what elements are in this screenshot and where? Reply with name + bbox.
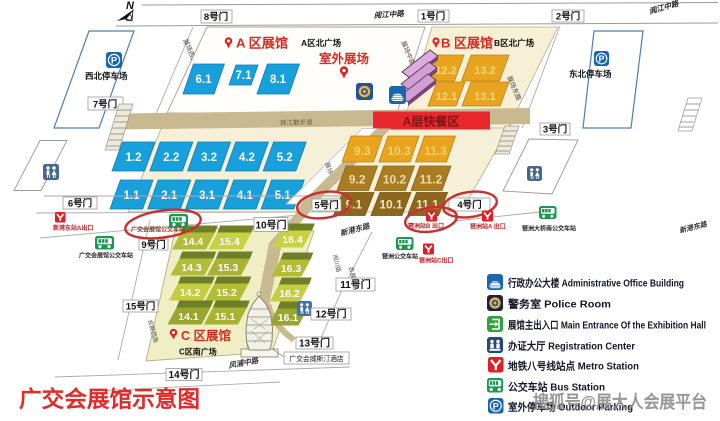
svg-text:5.2: 5.2 (277, 152, 293, 164)
svg-text:16.2: 16.2 (279, 288, 300, 300)
svg-text:15号门: 15号门 (126, 301, 156, 313)
svg-text:3.2: 3.2 (201, 152, 217, 164)
svg-text:10.1: 10.1 (379, 198, 403, 212)
svg-text:16.3: 16.3 (281, 263, 302, 275)
svg-text:8号门: 8号门 (204, 11, 228, 23)
svg-text:琶洲站A 出口: 琶洲站A 出口 (470, 223, 506, 231)
svg-text:2号门: 2号门 (556, 11, 580, 23)
svg-text:行政办公大楼 Administrative Office B: 行政办公大楼 Administrative Office Building (507, 277, 684, 290)
svg-text:东北停车场: 东北停车场 (569, 69, 612, 79)
svg-text:14.1: 14.1 (178, 311, 199, 323)
svg-text:10.3: 10.3 (387, 144, 411, 158)
svg-text:9.2: 9.2 (349, 173, 366, 187)
svg-text:1.2: 1.2 (126, 152, 142, 164)
svg-text:13号门: 13号门 (299, 337, 330, 350)
svg-text:琶洲公交车站: 琶洲公交车站 (382, 253, 418, 261)
svg-text:琶洲站C出口: 琶洲站C出口 (419, 257, 453, 265)
svg-text:3号门: 3号门 (543, 124, 567, 136)
svg-text:14号门: 14号门 (168, 368, 199, 381)
svg-text:警务室 Police Room: 警务室 Police Room (507, 298, 611, 311)
svg-text:室外展场: 室外展场 (319, 51, 369, 66)
svg-text:13.2: 13.2 (474, 65, 495, 77)
svg-text:15.1: 15.1 (215, 311, 236, 323)
svg-text:9号门: 9号门 (141, 239, 165, 251)
svg-text:展馆主出入口 Main Entrance Of the Ex: 展馆主出入口 Main Entrance Of the Exhibition H… (508, 319, 706, 332)
svg-text:16.4: 16.4 (282, 234, 303, 246)
svg-text:11.3: 11.3 (424, 144, 447, 158)
svg-text:P: P (493, 401, 499, 411)
svg-text:10号门: 10号门 (255, 219, 286, 232)
svg-text:P: P (111, 55, 118, 66)
svg-text:12号门: 12号门 (315, 308, 346, 321)
svg-text:A层快餐区: A层快餐区 (403, 114, 460, 129)
svg-text:N: N (126, 0, 135, 12)
svg-text:4.2: 4.2 (239, 152, 255, 164)
svg-text:16.1: 16.1 (278, 312, 299, 324)
svg-text:琶洲站B 出口: 琶洲站B 出口 (408, 222, 444, 230)
svg-text:13.1: 13.1 (474, 91, 495, 103)
svg-text:6.1: 6.1 (196, 74, 213, 86)
svg-text:C区南广场: C区南广场 (179, 347, 217, 357)
svg-text:14.2: 14.2 (180, 287, 201, 299)
svg-text:A区北广场: A区北广场 (301, 38, 342, 48)
svg-text:A 区展馆: A 区展馆 (236, 36, 288, 51)
svg-text:15.4: 15.4 (219, 236, 240, 248)
svg-text:B 区展馆: B 区展馆 (441, 36, 493, 51)
svg-text:办证大厅 Registration Center: 办证大厅 Registration Center (508, 340, 635, 353)
svg-text:15.3: 15.3 (218, 262, 239, 274)
svg-text:琶洲大桥南公交车站: 琶洲大桥南公交车站 (522, 225, 576, 233)
svg-text:2.2: 2.2 (163, 152, 179, 164)
svg-text:7.1: 7.1 (236, 70, 253, 82)
svg-text:12.1: 12.1 (436, 91, 457, 103)
svg-text:新港东站A出口: 新港东站A出口 (53, 224, 93, 232)
svg-text:6号门: 6号门 (68, 198, 92, 210)
svg-text:14.4: 14.4 (183, 236, 204, 248)
svg-text:搜狐号@展大人会展平台: 搜狐号@展大人会展平台 (533, 392, 707, 412)
svg-text:7号门: 7号门 (93, 99, 117, 111)
svg-text:C 区展馆: C 区展馆 (181, 328, 231, 343)
svg-text:10.2: 10.2 (383, 173, 407, 187)
svg-text:B区北广场: B区北广场 (494, 38, 535, 48)
svg-text:广交会展馆公交车站: 广交会展馆公交车站 (79, 252, 133, 260)
svg-text:西北停车场: 西北停车场 (85, 71, 128, 81)
svg-text:P: P (598, 54, 604, 64)
svg-text:11.2: 11.2 (420, 173, 443, 187)
svg-text:地铁八号线站点 Metro Station: 地铁八号线站点 Metro Station (508, 360, 639, 373)
svg-text:广交会威斯汀酒店: 广交会威斯汀酒店 (289, 354, 344, 363)
svg-text:12.2: 12.2 (435, 65, 456, 77)
svg-text:8.1: 8.1 (270, 74, 287, 86)
svg-text:广交会展馆公交车站: 广交会展馆公交车站 (131, 226, 185, 234)
svg-text:1号门: 1号门 (421, 11, 445, 23)
svg-text:4号门: 4号门 (457, 199, 481, 211)
svg-text:15.2: 15.2 (216, 287, 237, 299)
svg-text:9.3: 9.3 (354, 144, 371, 158)
svg-text:广交会展馆示意图: 广交会展馆示意图 (19, 386, 200, 412)
svg-text:5号门: 5号门 (314, 200, 338, 212)
svg-text:14.3: 14.3 (181, 262, 202, 274)
